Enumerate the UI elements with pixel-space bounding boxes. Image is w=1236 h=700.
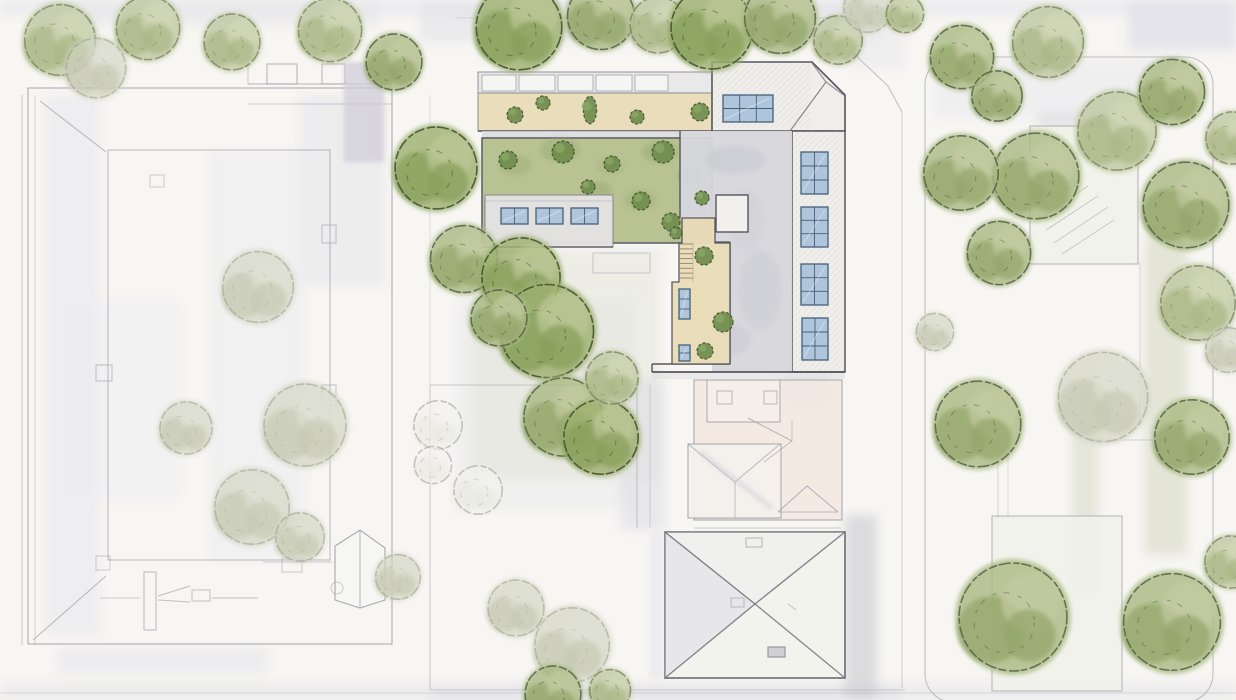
tree-canopy [993, 249, 1024, 280]
shrub-highlight [716, 314, 725, 323]
shrub [695, 247, 713, 265]
tree-canopy [1095, 391, 1138, 434]
tree-canopy [252, 282, 286, 316]
tree [1055, 349, 1151, 445]
tree-canopy [834, 37, 857, 60]
shrub-body [536, 96, 550, 110]
shrub-highlight [606, 158, 613, 165]
shrub [630, 110, 644, 124]
tree [1120, 570, 1224, 674]
tree-canopy [607, 374, 632, 399]
shrub-highlight [509, 109, 516, 116]
shrub-highlight [538, 97, 544, 103]
shrub-highlight [693, 105, 701, 113]
site-plan [0, 0, 1236, 700]
tree [452, 464, 504, 516]
shrub-body [697, 343, 713, 359]
shrub-highlight [672, 228, 677, 233]
plan-rect [60, 300, 180, 500]
plan-rect [558, 75, 593, 91]
plan-rect [1128, 0, 1236, 50]
tree-canopy [511, 21, 552, 62]
tree [261, 381, 349, 469]
tree [1152, 397, 1232, 477]
shrub-body [604, 156, 620, 172]
shrub-body [630, 110, 644, 124]
shrub [536, 96, 550, 110]
shrub-highlight [699, 345, 706, 352]
tree-canopy [1110, 126, 1148, 164]
tree [955, 559, 1071, 675]
tree [915, 312, 955, 352]
tree [1137, 57, 1207, 127]
shrub [713, 312, 733, 332]
tree [965, 219, 1033, 287]
layer-hip-roof-house [650, 532, 845, 678]
tree [921, 133, 1001, 213]
tree-canopy [774, 13, 808, 47]
shrub [691, 103, 709, 121]
skylight-window [802, 318, 828, 360]
shrub-highlight [634, 194, 642, 202]
tree-canopy [389, 58, 416, 85]
tree-canopy [1042, 37, 1076, 71]
tree [584, 350, 640, 406]
tree-canopy [434, 422, 457, 445]
tree-canopy [954, 168, 990, 204]
tree [469, 288, 529, 348]
tree [413, 445, 453, 485]
tree-canopy [429, 162, 469, 202]
skylight-window [679, 289, 690, 319]
plan-rect [482, 131, 712, 138]
shrub-highlight [583, 181, 589, 187]
tree-canopy [494, 314, 521, 341]
tree-canopy [474, 487, 497, 510]
shrub-highlight [501, 153, 509, 161]
tree-canopy [1028, 170, 1069, 211]
tree-canopy [296, 534, 319, 557]
tree [202, 12, 262, 72]
plan-rect [57, 648, 267, 674]
tree-canopy [539, 325, 584, 370]
skylight-window [501, 208, 528, 224]
shrub-body [552, 141, 574, 163]
tree-canopy [511, 604, 538, 631]
tree [1140, 159, 1232, 251]
plan-rect [716, 195, 748, 232]
shrub-body [632, 192, 650, 210]
tree [1010, 4, 1086, 80]
plan-rect [596, 75, 632, 91]
tree [970, 69, 1024, 123]
tree [364, 32, 424, 92]
shrub [507, 107, 523, 123]
shrub [652, 141, 674, 163]
tree-canopy [1163, 615, 1210, 662]
skylight-window [679, 345, 690, 361]
tree-canopy [298, 419, 338, 459]
tree-canopy [324, 26, 355, 57]
shrub-highlight [582, 101, 592, 111]
tree-canopy [970, 418, 1011, 459]
shrub-highlight [697, 249, 705, 257]
plan-rect [680, 131, 712, 218]
shrub-highlight [664, 215, 672, 223]
tree-canopy [992, 92, 1016, 116]
tree-canopy [1166, 87, 1198, 119]
skylight-window [536, 208, 563, 224]
tree-canopy [142, 24, 173, 55]
tree-canopy [394, 574, 416, 596]
tree-canopy [181, 424, 206, 449]
shrub-body [581, 180, 595, 194]
skylight-window [801, 207, 828, 247]
plan-rect [635, 75, 668, 91]
tree-canopy [595, 11, 627, 43]
tree [220, 249, 296, 325]
tree [374, 553, 422, 601]
tree-canopy [227, 38, 254, 65]
shrub-highlight [655, 143, 665, 153]
shrub [581, 180, 595, 194]
tree [412, 399, 464, 451]
tree [932, 378, 1024, 470]
shrub-body [695, 247, 713, 265]
tree [990, 130, 1082, 222]
shrub [670, 227, 682, 239]
shrub-highlight [697, 192, 703, 198]
plan-rect [707, 380, 780, 422]
tree [561, 397, 641, 477]
tree-canopy [1185, 432, 1221, 468]
skylight-window [723, 95, 773, 122]
plan-rect [652, 373, 845, 379]
shrub [695, 191, 709, 205]
shrub-body [652, 141, 674, 163]
roof-mottle [738, 250, 782, 330]
shrub [499, 151, 517, 169]
tree-canopy [864, 5, 887, 28]
shrub-highlight [555, 143, 565, 153]
shrub-body [713, 312, 733, 332]
plan-rect [482, 75, 516, 91]
plan-rect [650, 532, 663, 678]
tree [274, 511, 326, 563]
shrub-highlight [632, 111, 638, 117]
shrub-body [499, 151, 517, 169]
tree-canopy [1178, 199, 1219, 240]
tree-canopy [594, 432, 630, 468]
shrub [552, 141, 574, 163]
roof-mottle [705, 146, 765, 174]
shrub [604, 156, 620, 172]
tree [392, 124, 480, 212]
tree [486, 578, 546, 638]
shrub-body [695, 191, 709, 205]
skylight-window [801, 264, 828, 305]
tree [158, 400, 214, 456]
shrub-body [670, 227, 682, 239]
shrub-body [691, 103, 709, 121]
tree-canopy [91, 64, 120, 93]
plan-rect [845, 515, 877, 700]
tree-canopy [705, 22, 745, 62]
shrub-body [507, 107, 523, 123]
shrub [632, 192, 650, 210]
plan-rect [519, 75, 555, 91]
skylight-window [801, 152, 828, 194]
skylight-window [571, 208, 598, 224]
site-plan-canvas [0, 0, 1236, 700]
plan-rect [768, 647, 785, 657]
shrub [697, 343, 713, 359]
tree-canopy [1003, 609, 1055, 661]
